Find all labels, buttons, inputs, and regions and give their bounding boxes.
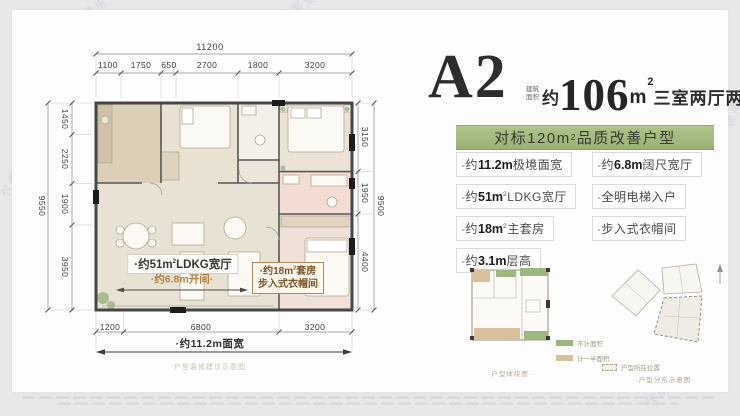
feature-num: 18m [478,222,503,236]
dim-bottom-seg: 1200 [92,322,128,332]
bay-width-label: ·约6.8m开间· [151,272,213,287]
dim-right-seg: 3150 [360,127,370,148]
suite-label-text: ·约18m [260,266,293,277]
dim-right-seg: 4400 [360,252,370,273]
feature-item: ·约18m2主套房 [456,216,554,241]
area-value: 106 [559,76,630,114]
feature-item: ·步入式衣帽间 [592,216,686,241]
area-prefix: 约 [542,84,559,114]
feature-item: ·约6.8m阔尺宽厅 [592,152,702,177]
unit-block-thumbnail [464,262,556,350]
feature-column-left: ·约11.2m极境面宽 ·约51m2LDKG宽厅 ·约18m2主套房 ·约3.1… [456,152,576,273]
dim-bottom-seg: 3200 [297,322,333,332]
dim-left-seg: 1900 [60,194,70,215]
dim-top-seg: 1800 [240,60,276,70]
feature-item: ·全明电梯入户 [592,184,686,209]
dim-left-total: 9550 [37,196,47,217]
suite-line2: 步入式衣帽间 [258,278,318,291]
area-note: 建筑 面积 [526,86,539,102]
content-card: 11200 1100 1750 650 2700 1800 3200 9550 … [12,10,728,392]
feature-rest: 极境面宽 [513,158,563,172]
dim-top-seg: 3200 [297,60,333,70]
footer-disclaimer-line [58,402,678,405]
dim-top-seg: 1100 [90,60,126,70]
dim-right-total: 9500 [376,196,386,217]
info-panel: A2 建筑 面积 约 106 m 2 三室两厅两卫 对标120m2品质改善户型 … [426,10,728,392]
banner-rest: 品质改善户型 [577,127,676,148]
feature-rest: 阔尺宽厅 [643,158,693,172]
feature-num: 51m [478,190,503,204]
master-suite-label: ·约18m2套房 步入式衣帽间 [252,262,324,294]
dim-top-seg: 650 [151,60,187,70]
dim-overall-width-label: ·约11.2m面宽 [30,336,390,351]
feature-rest: 主套房 [507,222,545,236]
suite-line1: ·约18m2套房 [258,265,318,278]
feature-pre: ·约 [597,158,614,172]
area-note-line1: 建筑 [526,86,539,94]
suite-label-rest: 套房 [296,266,316,277]
feature-num: 11.2m [478,158,513,172]
area-row: 约 106 m 2 三室两厅两卫 [542,64,740,114]
dim-bottom-seg: 6800 [183,322,219,332]
dim-top-seg: 2700 [189,60,225,70]
location-legend-row: 户型所在位置 [602,362,660,372]
site-thumbnail-caption: ·户型分布示意图· [598,374,732,384]
feature-item: ·约11.2m极境面宽 [456,152,572,177]
area-note-line2: 面积 [526,94,539,102]
room-configuration: 三室两厅两卫 [654,84,740,114]
legend-swatch-green [556,340,573,346]
legend-swatch-tan [556,355,573,361]
feature-num: 6.8m [614,158,643,172]
floor-plan-area: 11200 1100 1750 650 2700 1800 3200 9550 … [30,40,390,388]
block-thumbnail-caption: ·户型体块图· [464,368,556,378]
unit-code: A2 [428,46,508,108]
dim-top-total: 11200 [30,42,390,52]
real-estate-flyer: 仅供内部使用 仅供内部使用 仅供内部使用 仅供内部使用 仅供内部使用 仅供内部使… [0,0,740,416]
footer-disclaimer-line [22,396,718,399]
dim-left-seg: 1450 [60,109,70,130]
dim-left-seg: 2250 [60,149,70,170]
site-plan-thumbnail [598,260,732,354]
feature-pre: ·约 [461,190,478,204]
ldkg-label-rest: LDKG宽厅 [176,259,232,271]
dim-left-seg: 3950 [60,257,70,278]
feature-column-right: ·约6.8m阔尺宽厅 ·全明电梯入户 ·步入式衣帽间 [592,152,702,241]
feature-rest: LDKG宽厅 [507,190,567,204]
feature-rest: 全明电梯入户 [602,190,677,204]
legend-swatch-dashed [602,364,617,371]
benchmark-banner: 对标120m2品质改善户型 [456,125,714,150]
feature-item: ·约51m2LDKG宽厅 [456,184,576,209]
feature-pre: ·约 [461,158,478,172]
feature-rest: 步入式衣帽间 [602,222,677,236]
location-label: 户型所在位置 [621,362,660,372]
ldkg-label-text: ·约51m [134,259,172,271]
area-unit: m [630,87,647,114]
feature-pre: ·约 [461,222,478,236]
banner-text: 对标120m [494,127,571,148]
dim-right-seg: 1950 [360,183,370,204]
plan-caption: ·户型装修建议示意图· [30,362,390,372]
